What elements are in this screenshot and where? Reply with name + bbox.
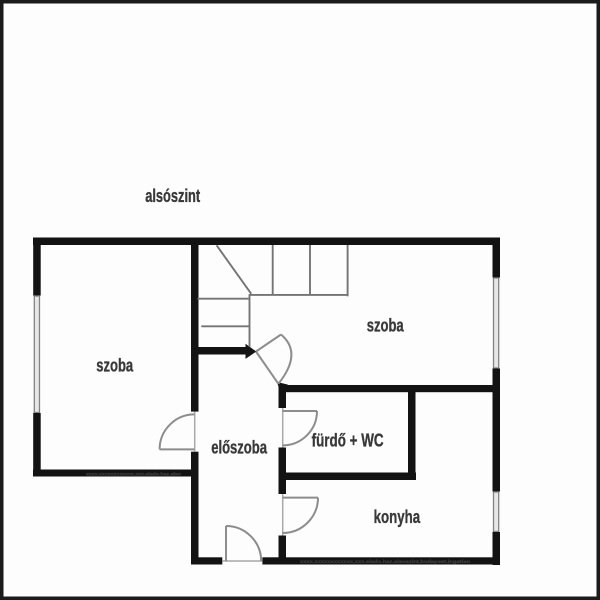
svg-text:alsószint: alsószint — [145, 185, 200, 206]
svg-text:konyha: konyha — [374, 507, 421, 527]
svg-text:szoba: szoba — [96, 355, 134, 375]
svg-text:fürdő + WC: fürdő + WC — [312, 430, 384, 450]
svg-text:előszoba: előszoba — [211, 438, 268, 458]
svg-text:szoba: szoba — [367, 315, 405, 335]
svg-text:xxxx.xxxxxxxxxxxx.xxx.elado.ha: xxxx.xxxxxxxxxxxx.xxx.elado.haz.also — [86, 472, 181, 477]
svg-text:xxxx.xxxxxxxxxxxx.xxx.elado.ha: xxxx.xxxxxxxxxxxx.xxx.elado.haz.alsoszin… — [300, 559, 470, 564]
